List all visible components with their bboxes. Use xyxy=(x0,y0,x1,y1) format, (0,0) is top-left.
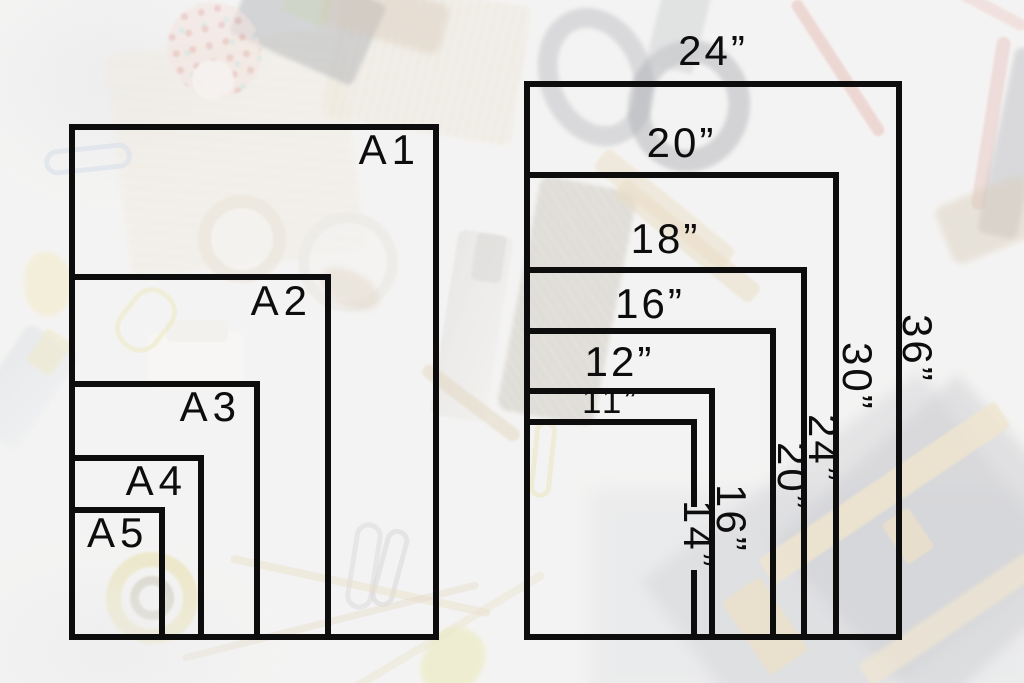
label-a4: A4 xyxy=(126,460,187,502)
photo-washi-tape-hole xyxy=(192,60,234,100)
width-label-12in: 12” xyxy=(524,341,715,383)
width-label-16in: 16” xyxy=(524,283,776,325)
width-label-20in: 20” xyxy=(524,122,839,164)
width-label-18in: 18” xyxy=(524,218,807,260)
photo-paint-tube-cap xyxy=(25,327,72,377)
label-a2: A2 xyxy=(251,280,312,322)
photo-brush xyxy=(317,0,451,56)
photo-phone xyxy=(228,0,387,87)
rect-11x14-right-edge-lower xyxy=(691,570,697,640)
photo-phone-screen xyxy=(281,0,334,28)
height-label-20in: 20” xyxy=(771,442,813,512)
height-label-14in: 14” xyxy=(677,500,719,570)
height-label-30in: 30” xyxy=(836,342,878,412)
photo-brush xyxy=(933,173,1024,266)
photo-washi-tape-roll xyxy=(158,0,270,108)
width-label-11in: 11” xyxy=(524,384,697,419)
width-label-24in: 24” xyxy=(524,30,902,72)
label-a3: A3 xyxy=(180,386,241,428)
photo-paint-tube-cap xyxy=(470,232,507,284)
rect-11x14 xyxy=(524,419,697,640)
photo-paint-blob xyxy=(24,252,72,316)
rect-11x14-right-edge-upper xyxy=(691,419,697,507)
label-a5: A5 xyxy=(87,512,148,554)
photo-marker xyxy=(977,46,1024,240)
label-a1: A1 xyxy=(359,129,420,171)
photo-red-pencil xyxy=(970,36,1011,211)
photo-red-pencil xyxy=(890,0,1024,33)
size-comparison-diagram: A1 A2 A3 A4 A5 24” 20” 18” 16” 12” 11” 3… xyxy=(0,0,1024,683)
height-label-36in: 36” xyxy=(896,314,938,384)
photo-paint-tube xyxy=(430,229,515,423)
